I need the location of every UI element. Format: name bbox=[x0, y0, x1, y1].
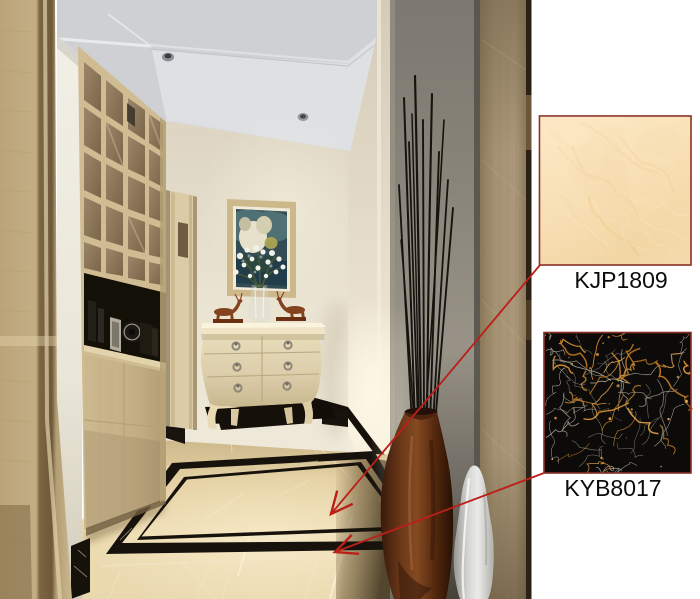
svg-text:KJP1809: KJP1809 bbox=[574, 267, 667, 293]
svg-text:KYB8017: KYB8017 bbox=[564, 475, 661, 501]
